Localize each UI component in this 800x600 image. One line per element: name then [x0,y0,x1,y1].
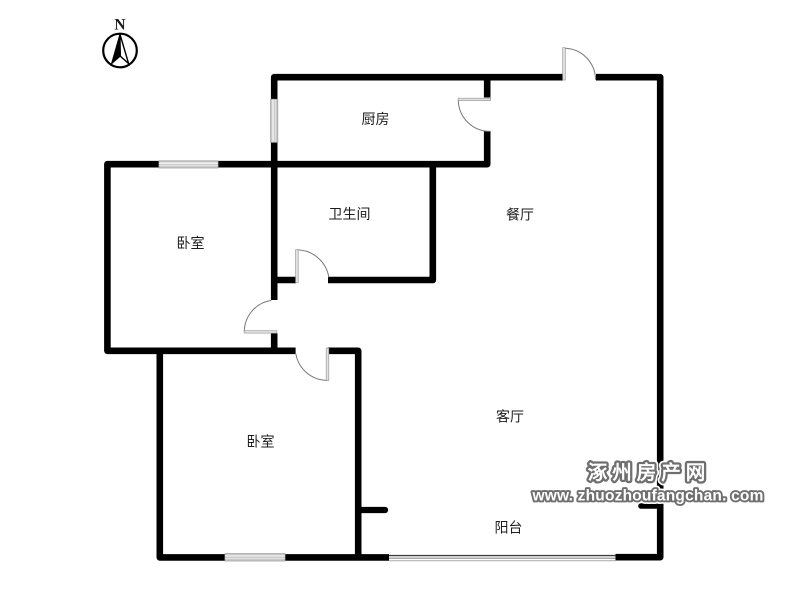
svg-text:厨房: 厨房 [362,111,390,127]
svg-text:N: N [114,17,125,34]
svg-text:卫生间: 卫生间 [329,206,371,222]
svg-text:餐厅: 餐厅 [506,207,534,223]
svg-text:卧室: 卧室 [177,235,205,251]
svg-text:客厅: 客厅 [496,409,524,425]
svg-text:涿州房产网: 涿州房产网 [588,461,711,484]
svg-text:www. zhuozhoufangchan. com: www. zhuozhoufangchan. com [531,487,763,504]
svg-text:卧室: 卧室 [247,434,275,450]
svg-text:阳台: 阳台 [495,520,523,536]
